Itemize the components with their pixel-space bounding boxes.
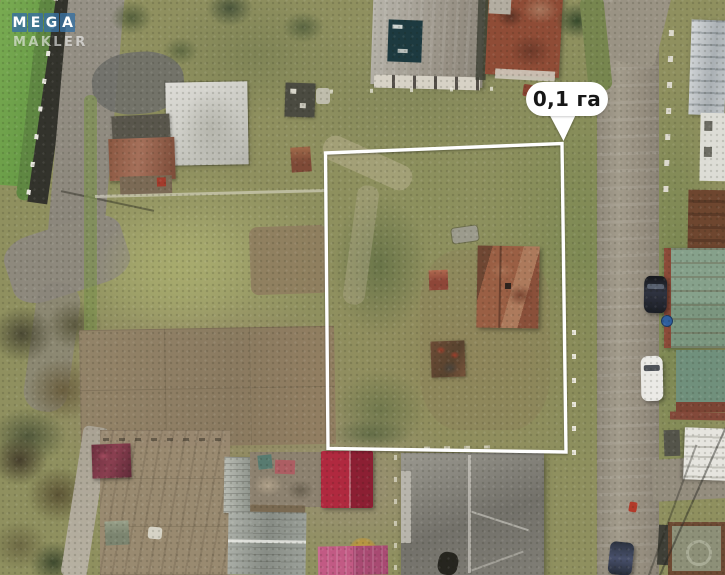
- crimson-gable-roof: [321, 451, 373, 508]
- pink-roof-piece: [275, 460, 295, 475]
- fence-posts-plot-side: [572, 330, 576, 465]
- teal-tarp: [257, 454, 272, 469]
- bushes-top-garden: [95, 0, 340, 89]
- corrugated-shed: [224, 457, 252, 513]
- teal-roof-patch: [387, 19, 422, 62]
- plot-old-house: [476, 245, 539, 328]
- white-wall-building: [699, 113, 725, 181]
- watermark-tile: A: [60, 13, 75, 32]
- teal-roof-building: [664, 248, 725, 348]
- silver-metal-roof: [688, 19, 725, 115]
- pink-roof-building: [318, 545, 388, 575]
- red-object: [628, 501, 638, 512]
- dirt-patch: [249, 225, 329, 296]
- area-label: 0,1 га: [533, 87, 601, 111]
- watermark-tile: M: [12, 13, 27, 32]
- teal-roof-building-lower: [676, 350, 725, 412]
- plot-rusty-shed: [430, 340, 465, 377]
- bright-grass-patch: [95, 208, 260, 333]
- plot-bushes: [330, 418, 412, 450]
- roof-ridge: [468, 455, 471, 573]
- house-annex: [120, 175, 173, 195]
- roadside-hedge: [84, 95, 97, 335]
- dark-shed: [284, 82, 315, 117]
- concrete-pad: [165, 81, 248, 165]
- brown-structure-right: [687, 190, 725, 251]
- gray-green-shed: [104, 520, 129, 545]
- garden-fence-line: [103, 438, 228, 441]
- aerial-photo: 0,1 га M E G A MAKLER: [0, 0, 725, 575]
- blue-barrel: [661, 315, 673, 327]
- white-debris: [316, 88, 330, 104]
- corrugated-roof-large: [227, 511, 306, 575]
- gray-hip-roof-house: [401, 453, 544, 575]
- small-rusty-shed: [290, 146, 312, 172]
- watermark-makler: MAKLER: [13, 35, 88, 50]
- area-label-bubble: 0,1 га: [526, 82, 608, 116]
- white-car: [641, 356, 664, 401]
- black-car: [644, 276, 668, 313]
- roof-gray-corner: [489, 0, 512, 15]
- fence-posts-bottom: [394, 455, 397, 575]
- white-object: [148, 526, 163, 539]
- watermark-tile: G: [44, 13, 59, 32]
- maroon-roof-shed: [91, 443, 131, 478]
- watermark-logo: M E G A MAKLER: [12, 13, 88, 50]
- fenced-garden: [668, 522, 725, 575]
- red-roof-edge: [670, 412, 725, 421]
- watermark-tile: E: [28, 13, 43, 32]
- dark-shed-right: [664, 430, 681, 457]
- dark-blue-car: [607, 541, 634, 575]
- watermark-mega: M E G A: [12, 13, 88, 32]
- plot-red-shed: [429, 270, 449, 291]
